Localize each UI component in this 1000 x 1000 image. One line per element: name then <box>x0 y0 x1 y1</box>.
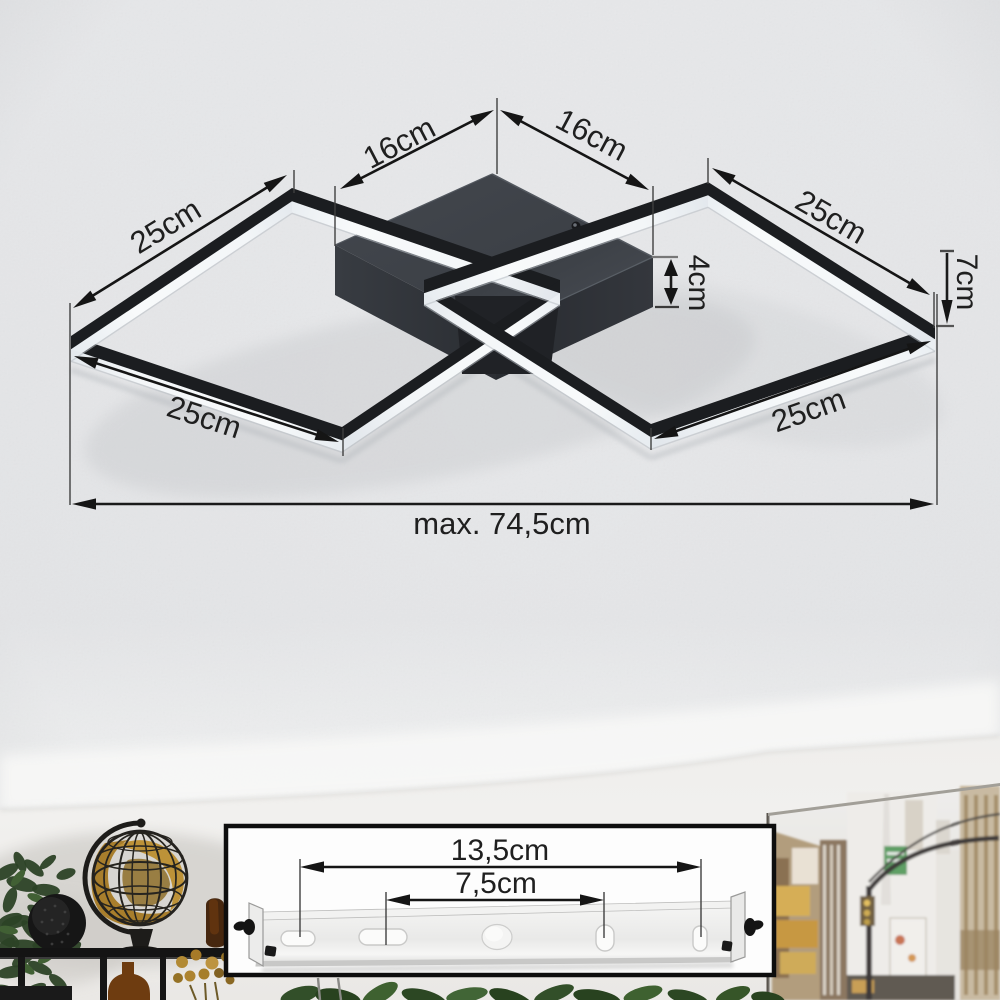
svg-text:7cm: 7cm <box>950 254 983 311</box>
svg-text:7,5cm: 7,5cm <box>455 867 537 900</box>
svg-text:4cm: 4cm <box>682 255 715 312</box>
svg-text:max. 74,5cm: max. 74,5cm <box>413 506 590 541</box>
svg-text:13,5cm: 13,5cm <box>451 834 549 867</box>
